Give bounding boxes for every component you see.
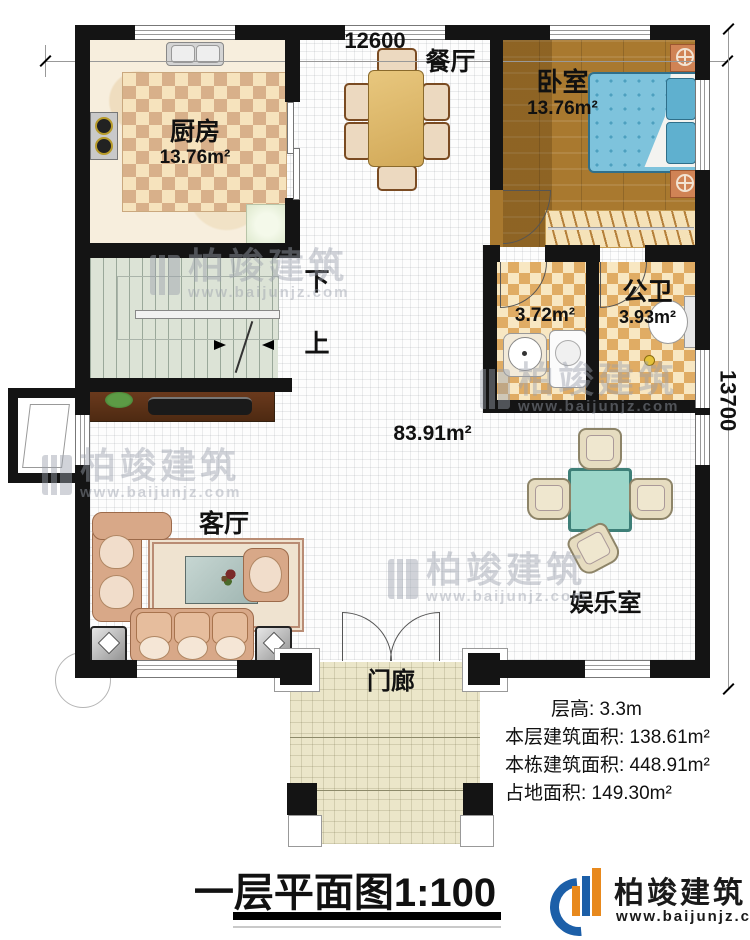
sofa-cushion [99,575,134,609]
logo-name: 柏竣建筑 [614,868,746,912]
sofa-cushion [99,535,134,569]
porch-pillar [468,653,500,685]
wardrobe-rail [548,227,694,230]
bedroom-label: 卧室 13.76m² [500,68,625,120]
entertainment-window [585,660,650,678]
porch-step-line [290,737,480,738]
armchair-cushion [249,556,282,593]
stairs-landing-outline [117,276,279,340]
stats-block: 层高: 3.3m 本层建筑面积: 138.61m² 本栋建筑面积: 448.91… [505,696,750,808]
title-underline-shadow [233,926,501,928]
bathroom-label: 公卫 3.93m² [600,278,695,327]
logo-bar [592,868,601,916]
kitchen-sliding-door [293,148,300,200]
porch-pillar [280,653,312,685]
nightstand-lamp-icon [676,48,694,66]
right-dimension-label: 13700 [715,363,740,439]
dining-table [368,70,424,167]
dining-chair [377,165,417,191]
right-dimension-line [728,30,729,690]
corner-sofa-arm [92,512,172,540]
logo-url: www.baijunjz.com [616,908,750,925]
logo-bar [582,876,590,916]
stairs-bottom-wall [75,378,292,392]
bathroom-name: 公卫 [600,278,695,307]
entertainment-side-window [695,415,710,465]
dining-label: 餐厅 [408,48,493,77]
bay-wall [8,473,75,483]
laundry-area-label: 3.72m² [505,305,585,327]
top-dimension-label: 12600 [330,28,420,53]
dining-chair [422,122,450,160]
bath-left-wall [483,258,497,413]
porch-pillar [463,783,493,815]
porch-step-box [288,815,322,847]
living-label: 客厅 [185,510,263,539]
kitchen-right-wall [285,40,300,102]
bay-wall [8,388,75,398]
logo-building-icon [550,866,608,928]
bathroom-area: 3.93m² [600,307,695,328]
stat-floor-height: 层高: 3.3m [505,696,750,724]
floor-drain [644,355,655,366]
dining-chair [422,83,450,121]
bed-pillow [666,122,696,164]
hall-area-label: 83.91m² [385,422,480,446]
tv [148,397,252,415]
logo: 柏竣建筑 www.baijunjz.com [550,864,748,934]
kitchen-bottom-wall [75,243,300,258]
stat-building-area: 本栋建筑面积: 448.91m² [505,752,750,780]
porch-step-line [290,790,480,791]
living-window [137,660,237,678]
plant [105,392,133,408]
kitchen-label: 厨房 13.76m² [115,118,275,169]
kitchen-name: 厨房 [115,118,275,147]
stairs-handrail [135,310,280,319]
kitchen-area: 13.76m² [115,147,275,169]
bay-door-leaf [22,404,70,468]
left-wall [75,25,90,678]
bedroom-name: 卧室 [500,68,625,98]
stat-land-area: 占地面积: 149.30m² [505,780,750,808]
kitchen-sliding-door [287,102,294,154]
bedroom-bottom-wall [545,245,600,262]
mahjong-chair [629,478,673,520]
stove-burner [95,137,113,155]
sofa-cushion [177,636,208,660]
washing-machine-drum [555,340,581,366]
stat-floor-area: 本层建筑面积: 138.61m² [505,724,750,752]
porch-step-box [460,815,494,847]
plan-title: 一层平面图1:100 [180,860,510,918]
title-underline [233,912,501,920]
entertainment-label: 娱乐室 [558,590,653,618]
stair-side-window [75,415,90,465]
kitchen-counter [246,204,288,245]
bathroom-side-window [695,350,710,408]
kitchen-window [135,25,235,40]
bedroom-window [550,25,650,40]
bed-pillow [666,78,696,120]
bedroom-side-window [695,80,710,170]
stairs-direction-arrow [214,340,226,350]
stairs-down-label: 下 [300,268,334,297]
sofa-cushion [215,636,246,660]
sofa-cushion [139,636,170,660]
porch-label: 门廊 [355,668,427,696]
mahjong-chair [578,428,622,470]
bay-wall [8,388,18,483]
floor-plan: 12600 13700 厨房 13.76m² 餐厅 卧室 13.76m² [0,0,750,940]
mahjong-chair [527,478,571,520]
bedroom-area: 13.76m² [500,98,625,120]
stairs-up-label: 上 [300,330,334,359]
porch-pillar [287,783,317,815]
stairs-direction-arrow [262,340,274,350]
bedroom-bottom-wall [645,245,710,262]
coffee-table-decor [218,568,236,586]
bedroom-door-floor [490,190,503,247]
bath-bottom-wall [483,400,710,413]
nightstand-lamp-icon [676,174,694,192]
bath-divider-wall [586,262,599,402]
laundry-sink-drain [522,351,527,356]
stove-burner [95,117,113,135]
logo-bar [572,886,580,916]
top-dimension-line [45,61,728,62]
